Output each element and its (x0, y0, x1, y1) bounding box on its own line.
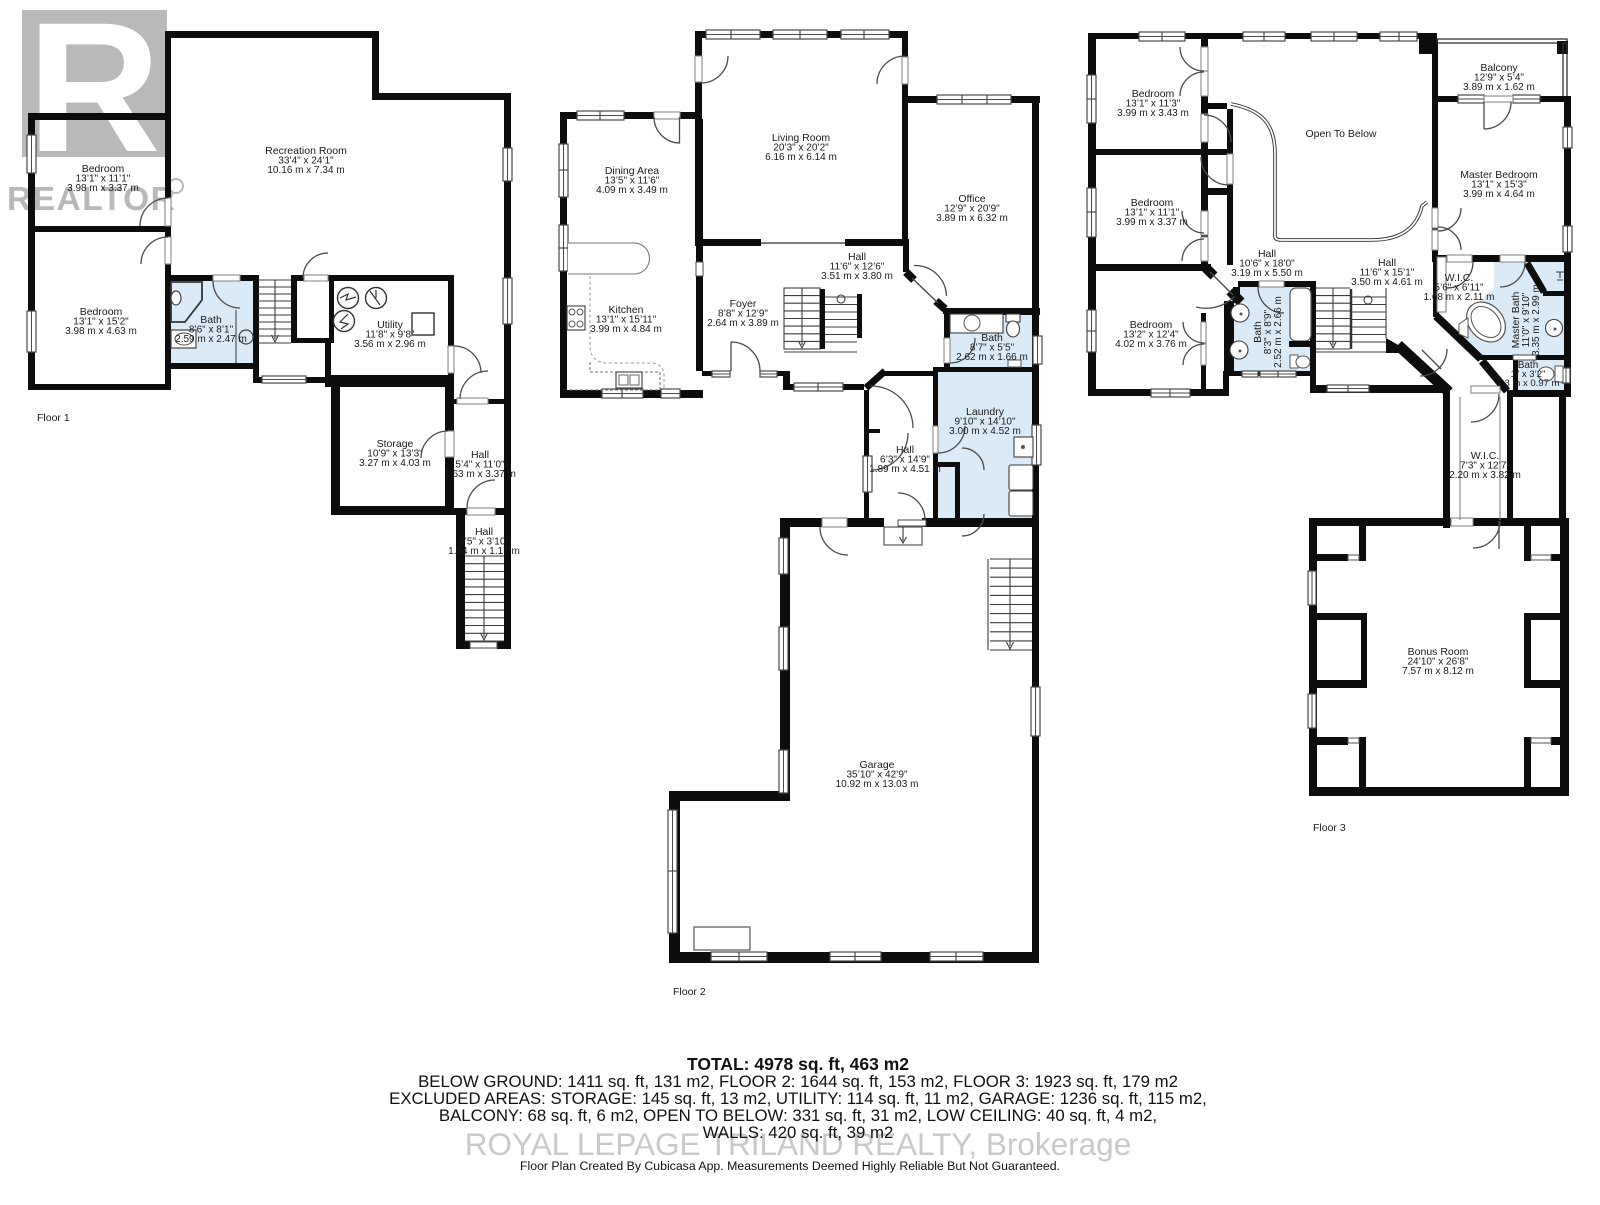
svg-text:3.89 m x 6.32 m: 3.89 m x 6.32 m (936, 213, 1008, 224)
svg-text:2.62 m x 1.66 m: 2.62 m x 1.66 m (956, 352, 1028, 363)
svg-text:Floor 3: Floor 3 (1313, 822, 1346, 834)
svg-text:Floor 1: Floor 1 (37, 412, 70, 424)
svg-text:3.99 m x 4.84 m: 3.99 m x 4.84 m (590, 324, 662, 335)
svg-text:6.16 m x 6.14 m: 6.16 m x 6.14 m (765, 152, 837, 163)
svg-text:7.57 m x 8.12 m: 7.57 m x 8.12 m (1402, 666, 1474, 677)
svg-text:WALLS: 420 sq. ft, 39 m2: WALLS: 420 sq. ft, 39 m2 (703, 1123, 894, 1142)
svg-text:2.59 m x 2.47 m: 2.59 m x 2.47 m (175, 334, 247, 345)
svg-text:4.09 m x 3.49 m: 4.09 m x 3.49 m (596, 185, 668, 196)
svg-text:4.02 m x 3.76 m: 4.02 m x 3.76 m (1115, 339, 1187, 350)
svg-text:3.35 m x 2.99 m: 3.35 m x 2.99 m (1531, 284, 1542, 356)
svg-text:1.34 m x 1.17 m: 1.34 m x 1.17 m (448, 546, 520, 557)
svg-text:Floor 2: Floor 2 (673, 986, 706, 998)
svg-text:3.27 m x 4.03 m: 3.27 m x 4.03 m (359, 458, 431, 469)
svg-text:2.52 m x 2.66 m: 2.52 m x 2.66 m (1273, 296, 1284, 368)
svg-text:1.3 m x 0.97 m: 1.3 m x 0.97 m (1497, 378, 1560, 389)
svg-text:TOTAL: 4978 sq. ft, 463 m2: TOTAL: 4978 sq. ft, 463 m2 (687, 1054, 909, 1074)
svg-text:2.20 m x 3.82 m: 2.20 m x 3.82 m (1449, 470, 1521, 481)
svg-text:1.68 m x 2.11 m: 1.68 m x 2.11 m (1424, 292, 1495, 303)
svg-text:3.19 m x 5.50 m: 3.19 m x 5.50 m (1231, 268, 1303, 279)
svg-text:3.51 m x 3.80 m: 3.51 m x 3.80 m (821, 271, 893, 282)
svg-text:1.89 m x 4.51 m: 1.89 m x 4.51 m (869, 464, 941, 475)
svg-text:3.98 m x 3.37 m: 3.98 m x 3.37 m (67, 183, 139, 194)
svg-text:1.63 m x 3.37 m: 1.63 m x 3.37 m (444, 469, 516, 480)
svg-text:3.98 m x 4.63 m: 3.98 m x 4.63 m (65, 326, 137, 337)
svg-text:3.56 m x 2.96 m: 3.56 m x 2.96 m (354, 339, 426, 350)
svg-text:3.99 m x 3.43 m: 3.99 m x 3.43 m (1117, 108, 1189, 119)
svg-text:3.89 m x 1.62 m: 3.89 m x 1.62 m (1463, 82, 1535, 93)
svg-text:Open To Below: Open To Below (1305, 128, 1376, 140)
svg-text:3.99 m x 3.37 m: 3.99 m x 3.37 m (1116, 217, 1188, 228)
svg-text:10.92 m x 13.03 m: 10.92 m x 13.03 m (836, 779, 919, 790)
svg-text:3.50 m x 4.61 m: 3.50 m x 4.61 m (1351, 277, 1423, 288)
svg-text:Floor Plan Created By Cubicasa: Floor Plan Created By Cubicasa App. Meas… (520, 1159, 1060, 1173)
svg-text:3.99 m x 4.64 m: 3.99 m x 4.64 m (1463, 189, 1535, 200)
svg-text:10.16 m x 7.34 m: 10.16 m x 7.34 m (267, 165, 344, 176)
svg-text:2.64 m x 3.89 m: 2.64 m x 3.89 m (707, 318, 779, 329)
svg-text:3.00 m x 4.52 m: 3.00 m x 4.52 m (949, 426, 1021, 437)
